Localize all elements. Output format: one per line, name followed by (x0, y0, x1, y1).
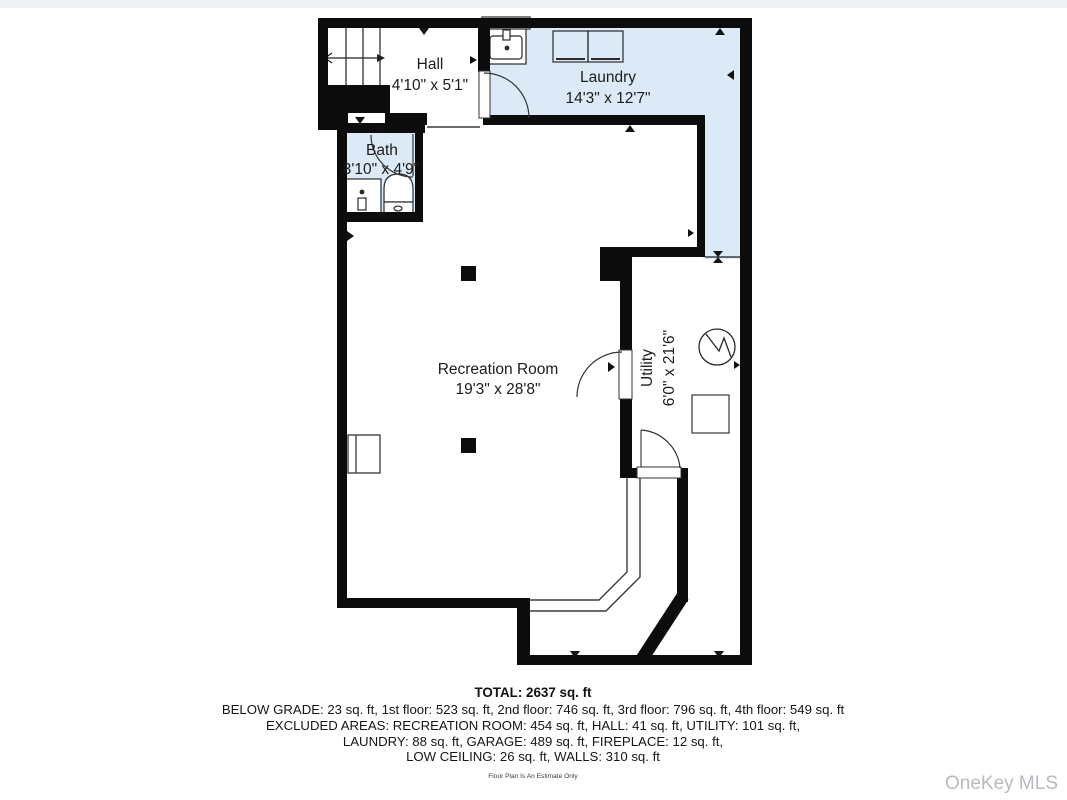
floor-plan: Hall 4'10" x 5'1" Laundry 14'3" x 12'7" … (0, 0, 1067, 800)
water-heater-icon (699, 329, 735, 365)
walls (318, 18, 752, 665)
floor-plan-page: Hall 4'10" x 5'1" Laundry 14'3" x 12'7" … (0, 0, 1067, 800)
hall-label: Hall (417, 56, 444, 73)
excluded-areas-3: LOW CEILING: 26 sq. ft, WALLS: 310 sq. f… (406, 749, 660, 764)
excluded-areas-2: LAUNDRY: 88 sq. ft, GARAGE: 489 sq. ft, … (343, 734, 723, 749)
diagonal-wall (642, 596, 683, 659)
door-utility-lower (637, 430, 681, 478)
recreation-room-dims: 19'3" x 28'8" (455, 381, 540, 398)
shower-icon (344, 179, 381, 215)
hall-dims: 4'10" x 5'1" (392, 77, 468, 94)
bath-dims: 3'10" x 4'9" (343, 161, 419, 178)
passage-outer-line (530, 478, 640, 611)
utility-label: Utility (639, 349, 656, 387)
laundry-label: Laundry (580, 69, 636, 86)
utility-dims: 6'0" x 21'6" (661, 330, 678, 406)
column-post (461, 438, 476, 453)
page-edge-strip (0, 0, 1067, 8)
toilet-icon (384, 174, 413, 215)
laundry-dims: 14'3" x 12'7" (565, 90, 650, 107)
room-fills (345, 26, 742, 259)
disclaimer-text: Floor Plan Is An Estimate Only (488, 773, 578, 780)
watermark-text: OneKey MLS (945, 773, 1058, 794)
passage-inner-line (530, 478, 627, 600)
door-utility-upper (577, 350, 632, 399)
window-icon (348, 435, 380, 473)
columns (461, 266, 476, 453)
area-summary: TOTAL: 2637 sq. ft BELOW GRADE: 23 sq. f… (222, 685, 845, 780)
recreation-room-label: Recreation Room (438, 361, 559, 378)
excluded-areas-1: EXCLUDED AREAS: RECREATION ROOM: 454 sq.… (266, 718, 800, 733)
column-post (461, 266, 476, 281)
total-area: TOTAL: 2637 sq. ft (474, 685, 592, 700)
equipment-box (692, 395, 729, 433)
stairs-icon (325, 28, 385, 87)
floor-areas: BELOW GRADE: 23 sq. ft, 1st floor: 523 s… (222, 702, 845, 717)
bath-label: Bath (366, 142, 398, 159)
